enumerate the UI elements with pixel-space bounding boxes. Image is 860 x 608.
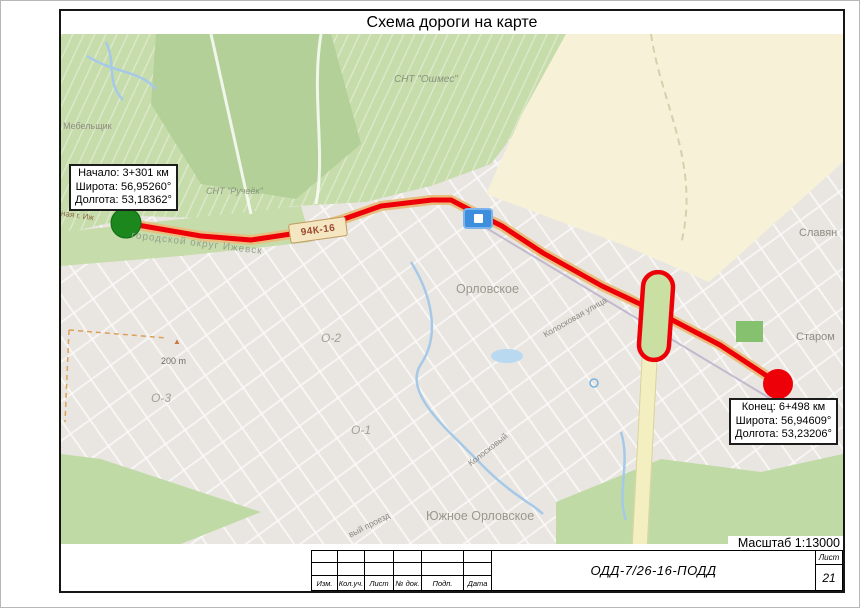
map-label-snt-rucheek: СНТ "Ручеёк" xyxy=(206,186,263,196)
map-canvas: СНТ "Ошмес" СНТ "Ручеёк" Мебельщик Орлов… xyxy=(61,34,843,544)
titleblock-empty-cell xyxy=(312,563,338,576)
map-label-mebelshik: Мебельщик xyxy=(63,121,112,131)
end-latitude: Широта: 56,94609° xyxy=(735,415,832,429)
highlight-oval xyxy=(638,271,674,361)
pond xyxy=(491,349,523,363)
titleblock-col-list: Лист xyxy=(365,576,394,590)
titleblock-col-ndok: № док. xyxy=(394,576,422,590)
road-sign-glyph xyxy=(474,214,483,223)
drawing-page: Схема дороги на карте xyxy=(0,0,860,608)
start-latitude: Широта: 56,95260° xyxy=(75,181,172,195)
map-artwork xyxy=(61,34,843,544)
sheet-label: Лист xyxy=(816,551,842,565)
title-block: Изм. Кол.уч. Лист № док. Подп. Дата ОДД-… xyxy=(311,550,843,591)
end-longitude: Долгота: 53,23206° xyxy=(735,428,832,442)
stream xyxy=(87,42,156,100)
map-label-yuzhnoe-orlovskoe: Южное Орловское xyxy=(426,509,534,523)
titleblock-empty-cell xyxy=(338,563,365,576)
titleblock-empty-cell xyxy=(394,551,422,563)
peak-icon: ▲ xyxy=(173,337,181,346)
titleblock-empty-cell xyxy=(394,563,422,576)
titleblock-empty-cell xyxy=(365,551,394,563)
titleblock-empty-cell xyxy=(422,551,464,563)
map-label-o2: О-2 xyxy=(321,331,341,345)
road-surface xyxy=(126,200,779,384)
route-line xyxy=(126,200,779,384)
map-label-slavyan: Славян xyxy=(799,227,837,239)
titleblock-col-koluch: Кол.уч. xyxy=(338,576,365,590)
scale-bar-label: 200 m xyxy=(161,356,186,366)
titleblock-empty-cell xyxy=(422,563,464,576)
stream xyxy=(411,262,543,514)
map-label-starom: Старом xyxy=(796,331,835,343)
end-chainage: Конец: 6+498 км xyxy=(735,401,832,415)
road-sign-icon xyxy=(463,208,493,229)
titleblock-empty-cell xyxy=(365,563,394,576)
title-block-revision-table: Изм. Кол.уч. Лист № док. Подп. Дата xyxy=(312,551,491,590)
start-longitude: Долгота: 53,18362° xyxy=(75,194,172,208)
field-path xyxy=(651,34,687,244)
titleblock-empty-cell xyxy=(464,563,491,576)
map-scale-note: Масштаб 1:13000 xyxy=(728,536,843,551)
municipal-boundary-line xyxy=(65,330,167,422)
page-title: Схема дороги на карте xyxy=(61,14,843,32)
map-label-orlovskoe: Орловское xyxy=(456,282,519,296)
document-number: ОДД-7/26-16-ПОДД xyxy=(491,551,815,590)
start-annotation: Начало: 3+301 км Широта: 56,95260° Долго… xyxy=(69,164,178,211)
titleblock-empty-cell xyxy=(312,551,338,563)
map-label-o3: О-3 xyxy=(151,391,171,405)
stream xyxy=(621,432,626,520)
map-label-snt-oshmes: СНТ "Ошмес" xyxy=(394,74,458,85)
sheet-number: 21 xyxy=(816,565,842,590)
titleblock-empty-cell xyxy=(464,551,491,563)
sheet-number-box: Лист 21 xyxy=(815,551,842,590)
forest-road xyxy=(316,34,321,204)
titleblock-empty-cell xyxy=(338,551,365,563)
map-label-o1: О-1 xyxy=(351,423,371,437)
titleblock-col-podp: Подп. xyxy=(422,576,464,590)
end-marker xyxy=(763,369,793,399)
end-annotation: Конец: 6+498 км Широта: 56,94609° Долгот… xyxy=(729,398,838,445)
start-chainage: Начало: 3+301 км xyxy=(75,167,172,181)
drawing-frame: Схема дороги на карте xyxy=(59,9,845,593)
titleblock-col-data: Дата xyxy=(464,576,491,590)
titleblock-col-izm: Изм. xyxy=(312,576,338,590)
small-pond xyxy=(590,379,598,387)
